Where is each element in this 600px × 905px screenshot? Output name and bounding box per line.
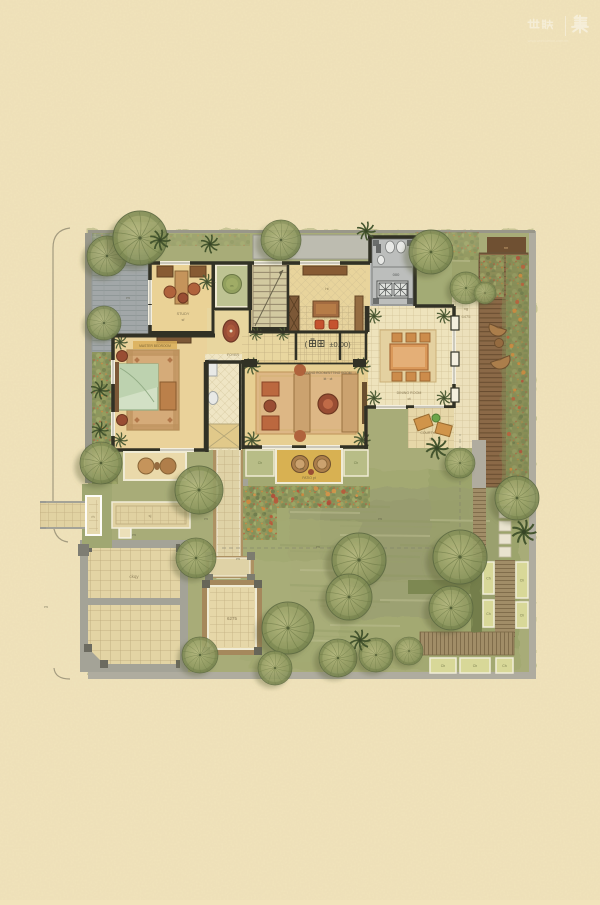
svg-text:www.worldunion.com.cn: www.worldunion.com.cn (528, 39, 569, 43)
